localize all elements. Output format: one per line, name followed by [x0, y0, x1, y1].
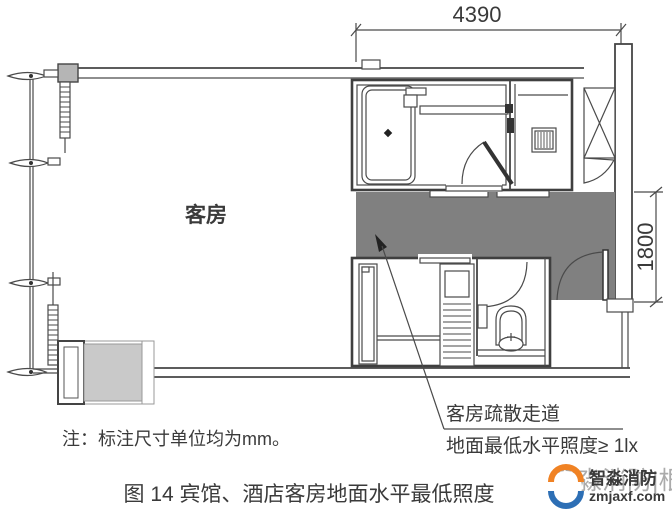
bed: [58, 341, 154, 404]
mattress: [84, 344, 142, 401]
dimension-right: 1800: [633, 187, 663, 307]
fixture-mark: [507, 118, 514, 133]
dimension-top: 4390: [351, 2, 626, 62]
watermark-brand: 智淼消防: [589, 468, 657, 488]
damper-flap: [584, 158, 614, 183]
corner-column: [58, 64, 78, 82]
curtain-symbol-top: [60, 82, 70, 153]
vent-grille: [532, 128, 556, 152]
callout-line1: 客房疏散走道: [446, 403, 560, 425]
bathroom-block: [352, 80, 572, 192]
callout-line2: 地面最低水平照度≥ 1lx: [446, 435, 638, 457]
dim-height-label: 1800: [633, 223, 658, 272]
stair-rack: [440, 264, 474, 366]
counter-shelf: [420, 106, 508, 114]
floor-plan-figure: 4390 1800: [0, 0, 672, 513]
curtain-symbol-bottom: [48, 272, 58, 365]
door-leaf: [603, 250, 608, 300]
door-threshold: [607, 299, 633, 312]
floor-plan-canvas: 4390 1800: [0, 0, 672, 513]
fixture-mark: [505, 104, 513, 113]
footboard: [142, 341, 154, 404]
note-text: 注：标注尺寸单位均为mm。: [62, 429, 290, 449]
sink: [478, 305, 487, 328]
guest-room-label: 客房: [185, 203, 227, 227]
lower-room-block: [352, 254, 550, 366]
watermark: 智淼消防|根 智淼消防 zmjaxf.com: [550, 467, 672, 506]
right-wall: [615, 44, 632, 300]
dim-width-label: 4390: [453, 2, 502, 27]
toilet: [496, 306, 526, 351]
wall-notch: [362, 60, 380, 69]
watermark-site: zmjaxf.com: [589, 488, 665, 504]
duct-shaft: [584, 88, 615, 183]
wardrobe: [359, 264, 377, 364]
watermark-logo-icon: [550, 467, 582, 506]
door-sill: [420, 258, 470, 263]
figure-caption: 图 14 宾馆、酒店客房地面水平最低照度: [123, 483, 494, 506]
